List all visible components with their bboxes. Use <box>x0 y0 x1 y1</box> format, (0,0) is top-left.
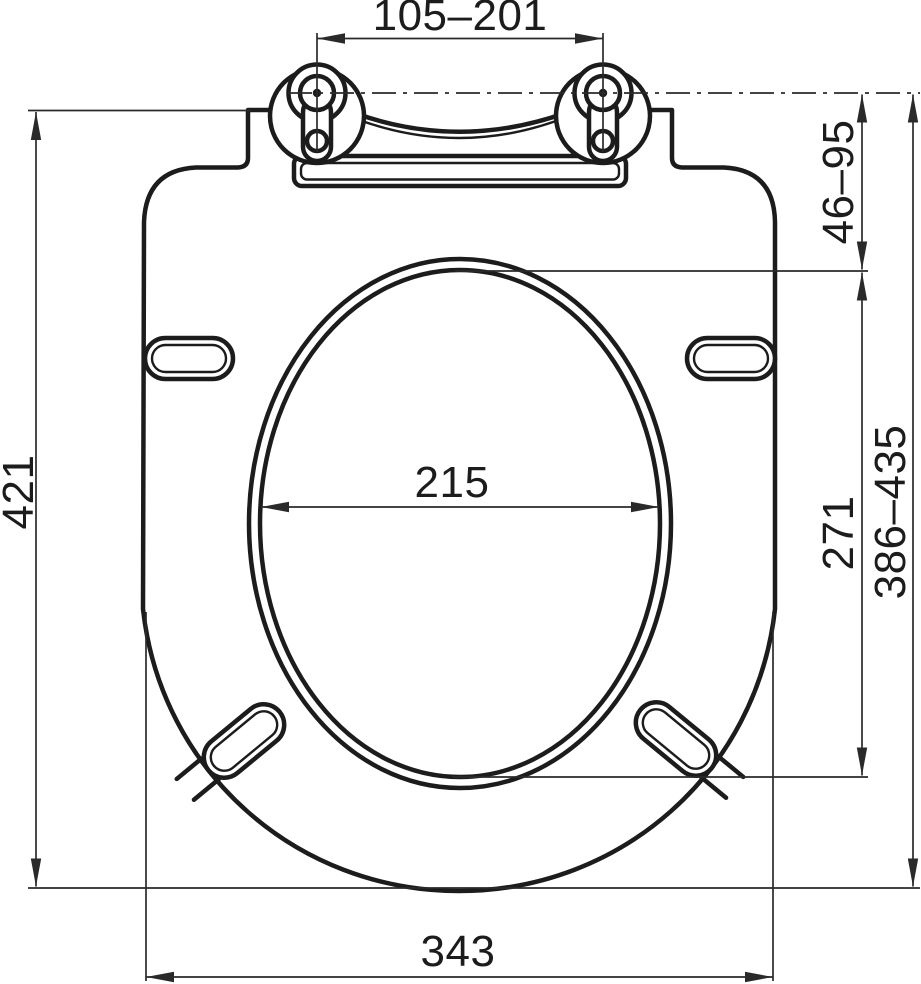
dim-label-overall-length: 421 <box>0 455 43 530</box>
toilet-seat-technical-drawing: 105–201 421 46–95 271 386–435 215 343 <box>0 0 921 984</box>
technical-drawing-canvas: 105–201 421 46–95 271 386–435 215 343 <box>0 0 921 984</box>
dim-label-opening-width: 215 <box>415 458 490 507</box>
dimension-opening-length: 271 <box>814 273 863 776</box>
slot-top-right <box>687 338 775 379</box>
dim-label-hinge-to-front: 386–435 <box>866 425 915 600</box>
dimension-overall-length: 421 <box>0 112 43 887</box>
dimension-hinge-to-front: 386–435 <box>866 95 915 887</box>
dim-label-opening-length: 271 <box>814 496 863 571</box>
dimension-hinge-to-lid-top: 46–95 <box>814 95 863 270</box>
dim-label-hinge-to-lid-top: 46–95 <box>814 120 863 245</box>
dimension-overall-width: 343 <box>146 927 773 977</box>
slot-top-left <box>145 338 233 379</box>
dimension-hinge-spacing: 105–201 <box>317 0 603 40</box>
dim-label-hinge-spacing: 105–201 <box>373 0 548 40</box>
dim-label-overall-width: 343 <box>421 927 496 976</box>
